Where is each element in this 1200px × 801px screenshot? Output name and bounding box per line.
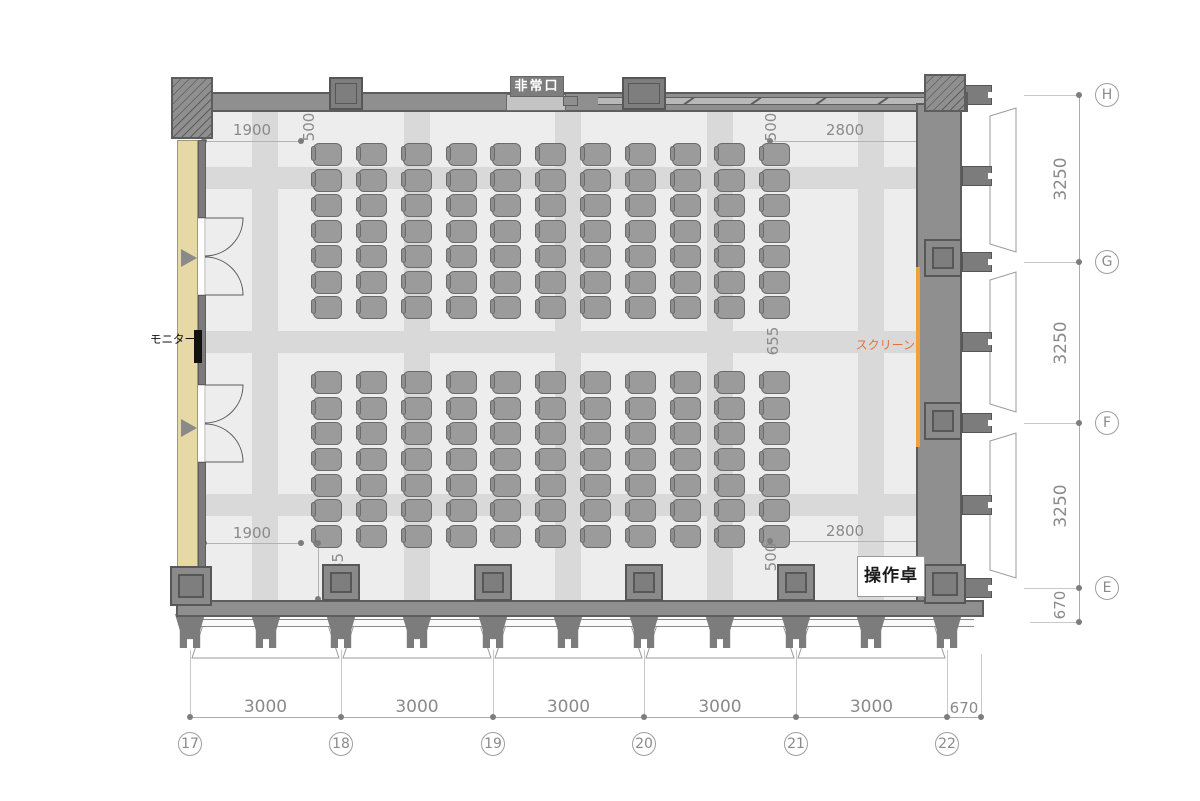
seat-back <box>625 146 630 161</box>
grid-bubble-22: 22 <box>935 732 959 756</box>
seat-back <box>670 274 675 289</box>
seat-back <box>401 248 406 263</box>
seat-back <box>670 299 675 314</box>
seat-back <box>490 146 495 161</box>
seat-back <box>490 528 495 543</box>
seat <box>448 525 477 548</box>
seat-back <box>535 425 540 440</box>
seat-back <box>759 223 764 238</box>
seat-back <box>490 477 495 492</box>
entry-arrow-icon <box>181 419 197 437</box>
seat <box>492 143 521 166</box>
wall-right <box>916 103 962 617</box>
seat <box>582 371 611 394</box>
grid-extension-line <box>341 650 342 717</box>
seat <box>403 397 432 420</box>
grid-extension-line <box>796 650 797 717</box>
seat <box>448 448 477 471</box>
seat-back <box>446 274 451 289</box>
seat <box>448 143 477 166</box>
seat <box>627 169 656 192</box>
seat-back <box>401 146 406 161</box>
mullion-fin <box>962 413 992 433</box>
seat-back <box>356 528 361 543</box>
seat <box>448 371 477 394</box>
seat-back <box>356 299 361 314</box>
seat <box>582 245 611 268</box>
seat <box>358 271 387 294</box>
seat-back <box>580 528 585 543</box>
seat-back <box>714 374 719 389</box>
dim-dot <box>1076 619 1082 625</box>
monitor-label: モニター <box>140 331 196 347</box>
mullion-foot <box>478 614 508 648</box>
column-inner <box>330 572 352 593</box>
seat-back <box>446 477 451 492</box>
seat-back <box>446 223 451 238</box>
seat-back <box>401 172 406 187</box>
dim-line <box>204 543 301 544</box>
grid-bubble-17: 17 <box>178 732 202 756</box>
seat-back <box>670 502 675 517</box>
seat-back <box>356 477 361 492</box>
seat-back <box>446 299 451 314</box>
seat <box>403 169 432 192</box>
seat <box>716 499 745 522</box>
corner-column-bottom-left <box>170 566 212 606</box>
seat-back <box>356 400 361 415</box>
seat-back <box>490 274 495 289</box>
seat <box>403 448 432 471</box>
dim-label: 2800 <box>810 121 880 139</box>
seat <box>716 525 745 548</box>
seat <box>448 245 477 268</box>
seat <box>537 371 566 394</box>
seat-back <box>446 400 451 415</box>
mullion-fin <box>962 578 992 598</box>
seat <box>537 296 566 319</box>
seat-back <box>714 274 719 289</box>
seat-back <box>490 223 495 238</box>
floor-band-horizontal <box>206 331 916 353</box>
seat <box>672 397 701 420</box>
seat <box>537 422 566 445</box>
fin-notch <box>988 339 993 345</box>
seat-back <box>490 451 495 466</box>
grid-bubble-20: 20 <box>632 732 656 756</box>
seat-back <box>625 425 630 440</box>
seat <box>492 169 521 192</box>
seat-back <box>625 197 630 212</box>
seat <box>448 271 477 294</box>
seat <box>761 448 790 471</box>
seat <box>358 296 387 319</box>
seat <box>627 525 656 548</box>
seat-back <box>714 146 719 161</box>
seat-back <box>311 425 316 440</box>
seat-back <box>401 502 406 517</box>
mullion-fin <box>962 495 992 515</box>
seat <box>627 474 656 497</box>
corner-column-top-right <box>924 74 966 112</box>
seat <box>492 245 521 268</box>
grid-extension-line <box>1024 95 1079 96</box>
dim-dot <box>315 540 321 546</box>
seat <box>672 194 701 217</box>
window-panel-right <box>990 108 1016 252</box>
seat-back <box>311 400 316 415</box>
window-panel-right <box>990 433 1016 578</box>
seat <box>582 525 611 548</box>
dim-line <box>204 141 301 142</box>
seat <box>492 422 521 445</box>
wall-bottom <box>176 600 984 617</box>
seat <box>672 271 701 294</box>
seat <box>716 397 745 420</box>
seat <box>582 499 611 522</box>
dim-dot <box>338 714 344 720</box>
seat <box>672 371 701 394</box>
seat-back <box>670 374 675 389</box>
entry-arrow-icon <box>181 249 197 267</box>
seat <box>403 245 432 268</box>
seat-back <box>401 223 406 238</box>
seat-back <box>535 400 540 415</box>
seat-back <box>625 400 630 415</box>
seat <box>716 448 745 471</box>
mullion-foot <box>932 614 962 648</box>
seat <box>492 448 521 471</box>
seat-back <box>580 451 585 466</box>
seat <box>492 296 521 319</box>
seat <box>313 474 342 497</box>
seat <box>492 525 521 548</box>
seat-back <box>759 299 764 314</box>
console-box: 操作卓 <box>857 556 925 597</box>
column-inner <box>178 574 204 598</box>
seat <box>672 422 701 445</box>
seat-back <box>311 248 316 263</box>
seat-back <box>580 400 585 415</box>
seat-back <box>759 425 764 440</box>
seat <box>582 448 611 471</box>
seat <box>627 296 656 319</box>
seat <box>403 194 432 217</box>
seat <box>313 194 342 217</box>
dim-label: 2800 <box>810 522 880 540</box>
seat-back <box>401 299 406 314</box>
dim-label: 1900 <box>217 121 287 139</box>
column-inner <box>932 572 958 596</box>
seat <box>448 474 477 497</box>
seat <box>358 525 387 548</box>
dim-dot <box>1076 259 1082 265</box>
seat-back <box>535 197 540 212</box>
seat-back <box>446 146 451 161</box>
seat-back <box>356 451 361 466</box>
seat <box>761 422 790 445</box>
mullion-foot <box>705 614 735 648</box>
grid-extension-line <box>493 650 494 717</box>
seat-back <box>311 197 316 212</box>
seat <box>358 448 387 471</box>
seat <box>403 422 432 445</box>
seat-back <box>714 248 719 263</box>
mullion-foot <box>402 614 432 648</box>
seat <box>537 397 566 420</box>
seat <box>627 448 656 471</box>
seat <box>403 143 432 166</box>
seat <box>582 143 611 166</box>
seat-back <box>580 502 585 517</box>
seat-back <box>580 425 585 440</box>
seat-back <box>311 374 316 389</box>
column-bottom <box>777 564 815 601</box>
seat <box>313 397 342 420</box>
seat-back <box>714 502 719 517</box>
seat-back <box>446 528 451 543</box>
seat <box>403 271 432 294</box>
dim-line <box>318 543 319 599</box>
mullion-foot <box>856 614 886 648</box>
seat-back <box>311 274 316 289</box>
seat-back <box>401 274 406 289</box>
seat <box>358 143 387 166</box>
seat <box>672 499 701 522</box>
seat <box>448 422 477 445</box>
seat-back <box>490 197 495 212</box>
seat-back <box>625 502 630 517</box>
seat-back <box>670 197 675 212</box>
seat <box>672 220 701 243</box>
seat-back <box>401 374 406 389</box>
seat-back <box>356 223 361 238</box>
seat-back <box>356 197 361 212</box>
seat-back <box>580 299 585 314</box>
seat <box>716 245 745 268</box>
seat-back <box>714 477 719 492</box>
grid-dim-label: 3250 <box>1051 466 1069 546</box>
seat-back <box>490 425 495 440</box>
pilaster-top <box>329 77 363 110</box>
seat-back <box>401 197 406 212</box>
column-right <box>924 239 962 277</box>
pilaster-top <box>622 77 666 110</box>
seat-back <box>714 172 719 187</box>
grid-bubble-18: 18 <box>329 732 353 756</box>
mullion-fin <box>962 332 992 352</box>
seat <box>716 271 745 294</box>
dim-dot <box>1076 92 1082 98</box>
seat-back <box>446 248 451 263</box>
fin-notch <box>988 420 993 426</box>
seat-back <box>356 425 361 440</box>
dim-dot <box>767 538 773 544</box>
seat <box>761 271 790 294</box>
column-bottom <box>474 564 512 601</box>
seat-back <box>490 299 495 314</box>
seat <box>448 220 477 243</box>
seat-back <box>535 172 540 187</box>
seat <box>358 194 387 217</box>
seat <box>761 474 790 497</box>
seat-back <box>670 248 675 263</box>
exit-sign: 非常口 <box>510 76 564 97</box>
seat-back <box>446 172 451 187</box>
seat <box>582 194 611 217</box>
seat <box>403 474 432 497</box>
seat <box>537 169 566 192</box>
seat <box>492 499 521 522</box>
seat-back <box>401 451 406 466</box>
exit-sign-label: 非常口 <box>514 79 559 94</box>
seat <box>716 474 745 497</box>
seat-back <box>714 451 719 466</box>
seat-back <box>356 172 361 187</box>
seat-back <box>759 374 764 389</box>
seat-back <box>446 374 451 389</box>
mullion-fin <box>962 252 992 272</box>
corner-column-top-left <box>171 77 213 139</box>
seat <box>537 194 566 217</box>
seat <box>582 422 611 445</box>
seat-back <box>670 528 675 543</box>
seat-back <box>714 425 719 440</box>
seat <box>403 371 432 394</box>
grid-bubble-21: 21 <box>784 732 808 756</box>
grid-dim-label: 3000 <box>832 697 912 717</box>
seat <box>358 499 387 522</box>
seat-back <box>714 223 719 238</box>
seat <box>582 474 611 497</box>
dim-dot <box>1076 420 1082 426</box>
seat <box>761 397 790 420</box>
seat <box>537 499 566 522</box>
seat <box>627 194 656 217</box>
seat <box>313 245 342 268</box>
seat-back <box>490 172 495 187</box>
seat-back <box>580 477 585 492</box>
seat <box>448 296 477 319</box>
seat <box>582 271 611 294</box>
mullion-foot <box>175 614 205 648</box>
seat <box>313 169 342 192</box>
seat <box>492 220 521 243</box>
seat <box>627 220 656 243</box>
seat <box>358 371 387 394</box>
screen-label: スクリーン <box>845 336 915 353</box>
seat-back <box>759 248 764 263</box>
seat-back <box>535 274 540 289</box>
grid-extension-line <box>190 650 191 717</box>
seat <box>492 474 521 497</box>
wall-inner-left-segment <box>198 462 206 567</box>
seat <box>358 169 387 192</box>
seat <box>313 499 342 522</box>
seat-back <box>714 299 719 314</box>
seat <box>627 499 656 522</box>
mullion-fin <box>962 166 992 186</box>
seat-back <box>580 274 585 289</box>
grid-dim-label: 3250 <box>1051 139 1069 219</box>
seat <box>627 143 656 166</box>
seat <box>448 499 477 522</box>
seat-back <box>535 477 540 492</box>
seat-back <box>714 528 719 543</box>
fin-notch <box>988 259 993 265</box>
seat <box>582 296 611 319</box>
dim-label: 655 <box>764 316 782 366</box>
column-inner <box>633 572 655 593</box>
seat <box>627 371 656 394</box>
seat <box>313 296 342 319</box>
seat-back <box>401 477 406 492</box>
seat <box>716 296 745 319</box>
seat <box>313 371 342 394</box>
seat <box>358 245 387 268</box>
seat-back <box>535 223 540 238</box>
seat-back <box>446 197 451 212</box>
fin-notch <box>988 173 993 179</box>
door-opening-bottom <box>197 385 205 462</box>
seat-back <box>625 451 630 466</box>
seat-back <box>535 299 540 314</box>
seat <box>492 371 521 394</box>
seat <box>403 296 432 319</box>
seat-back <box>759 274 764 289</box>
seat-back <box>311 451 316 466</box>
seat <box>403 499 432 522</box>
seat <box>716 194 745 217</box>
column-inner <box>932 247 954 269</box>
seat-back <box>580 374 585 389</box>
mullion-foot <box>629 614 659 648</box>
fin-notch <box>988 585 993 591</box>
seat-back <box>535 451 540 466</box>
seat-back <box>311 502 316 517</box>
seat-back <box>670 451 675 466</box>
grid-extension-line <box>1024 262 1079 263</box>
floor-plan: 非常口 モニター スクリーン 操作卓 190050028005006551900… <box>0 0 1200 801</box>
seat <box>448 397 477 420</box>
seat <box>716 169 745 192</box>
seat-back <box>670 425 675 440</box>
grid-bubble-E: E <box>1095 576 1119 600</box>
seat-back <box>580 197 585 212</box>
column-inner <box>482 572 504 593</box>
seat-back <box>759 400 764 415</box>
dim-dot <box>1076 585 1082 591</box>
seat-back <box>401 528 406 543</box>
mullion-foot <box>781 614 811 648</box>
seat-back <box>625 528 630 543</box>
seat-back <box>446 502 451 517</box>
seat <box>716 422 745 445</box>
seat-back <box>490 502 495 517</box>
seat-back <box>625 299 630 314</box>
dim-line <box>770 141 920 142</box>
seat <box>672 296 701 319</box>
seat-back <box>311 477 316 492</box>
seat <box>537 271 566 294</box>
seat <box>582 397 611 420</box>
dim-dot <box>187 714 193 720</box>
grid-dim-label: 3250 <box>1051 303 1069 383</box>
grid-bubble-H: H <box>1095 83 1119 107</box>
seat-back <box>759 502 764 517</box>
grid-dim-label: 3000 <box>529 697 609 717</box>
seat-back <box>625 248 630 263</box>
